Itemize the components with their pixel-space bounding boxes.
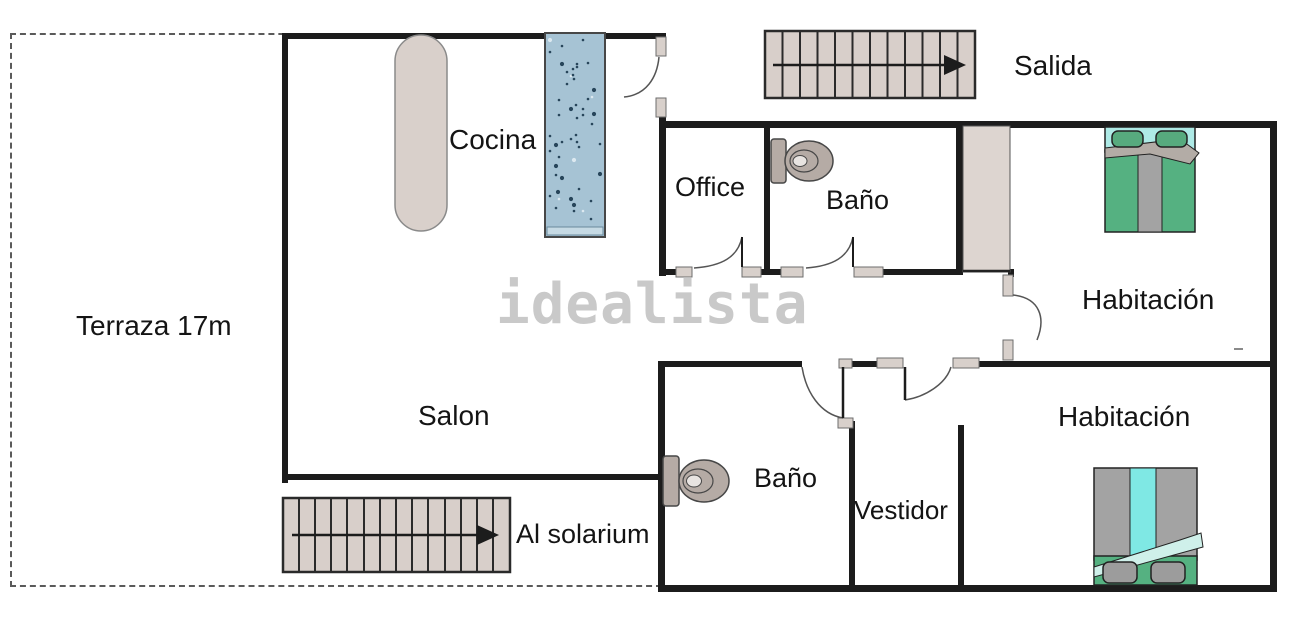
wall-bottom-outer xyxy=(658,585,1277,592)
wall-hall-bottom-1 xyxy=(658,361,802,367)
floor-plan: Terraza 17m Cocina Salida Office Baño Ha… xyxy=(0,0,1290,620)
bed-bottom-pillow-right xyxy=(1151,562,1185,583)
entry-door-hinge-top xyxy=(656,37,666,56)
office-door-arc xyxy=(694,237,742,268)
stairs-salida xyxy=(765,31,975,98)
bed-top-pillow-right xyxy=(1156,131,1187,147)
wall-kitchen-top xyxy=(282,33,666,39)
bedroom-door-hinge-top xyxy=(1003,275,1013,296)
stairs-solarium xyxy=(283,498,510,572)
bed-top-pillow-left xyxy=(1112,131,1143,147)
label-al-solarium: Al solarium xyxy=(516,519,650,550)
idealista-watermark: idealista xyxy=(496,272,808,337)
wall-office-left xyxy=(659,113,666,276)
wall-right-outer xyxy=(1270,121,1277,592)
wall-office-bano-divider xyxy=(764,124,770,274)
bano-door-threshold-right xyxy=(854,267,883,277)
wall-bano-bedroom-divider xyxy=(956,124,963,274)
wall-salon-left xyxy=(282,33,288,483)
wall-hall-top-3 xyxy=(880,269,963,275)
label-habitacion-top: Habitación xyxy=(1082,284,1214,316)
label-cocina: Cocina xyxy=(449,124,536,156)
lower-bano-door-hinge xyxy=(839,359,852,368)
toilet-top-bano xyxy=(771,139,833,183)
vestidor-door-arc xyxy=(905,367,951,400)
bedroom-top-door-arc xyxy=(1013,295,1041,340)
kitchen-counter-blue xyxy=(545,33,605,237)
lower-bano-door-stop xyxy=(838,418,853,428)
wardrobe xyxy=(963,126,1010,272)
vestidor-door-threshold-right xyxy=(953,358,979,368)
label-salida: Salida xyxy=(1014,50,1092,82)
bedroom-door-hinge-bottom xyxy=(1003,340,1013,360)
label-bano-bottom: Baño xyxy=(754,463,817,494)
wall-hall-bottom-3 xyxy=(977,361,1277,367)
lower-bano-door-arc xyxy=(802,367,843,418)
label-terraza: Terraza 17m xyxy=(76,310,232,342)
vestidor-door-threshold-left xyxy=(877,358,903,368)
label-bano-top: Baño xyxy=(826,185,889,216)
bed-bottom-bedroom xyxy=(1094,468,1203,585)
bed-top-bedroom xyxy=(1105,127,1199,232)
bed-bottom-pillow-left xyxy=(1103,562,1137,583)
kitchen-island xyxy=(395,35,447,231)
label-vestidor: Vestidor xyxy=(854,495,948,526)
label-salon: Salon xyxy=(418,400,490,432)
label-habitacion-bottom: Habitación xyxy=(1058,401,1190,433)
wall-salon-bottom xyxy=(282,474,663,480)
toilet-bottom-bano xyxy=(663,456,729,506)
bano-door-arc xyxy=(806,237,853,268)
label-office: Office xyxy=(675,172,745,203)
entry-door-arc xyxy=(624,57,659,97)
wall-vestidor-bedroom-divider xyxy=(958,425,964,589)
entry-door-hinge-bottom xyxy=(656,98,666,117)
